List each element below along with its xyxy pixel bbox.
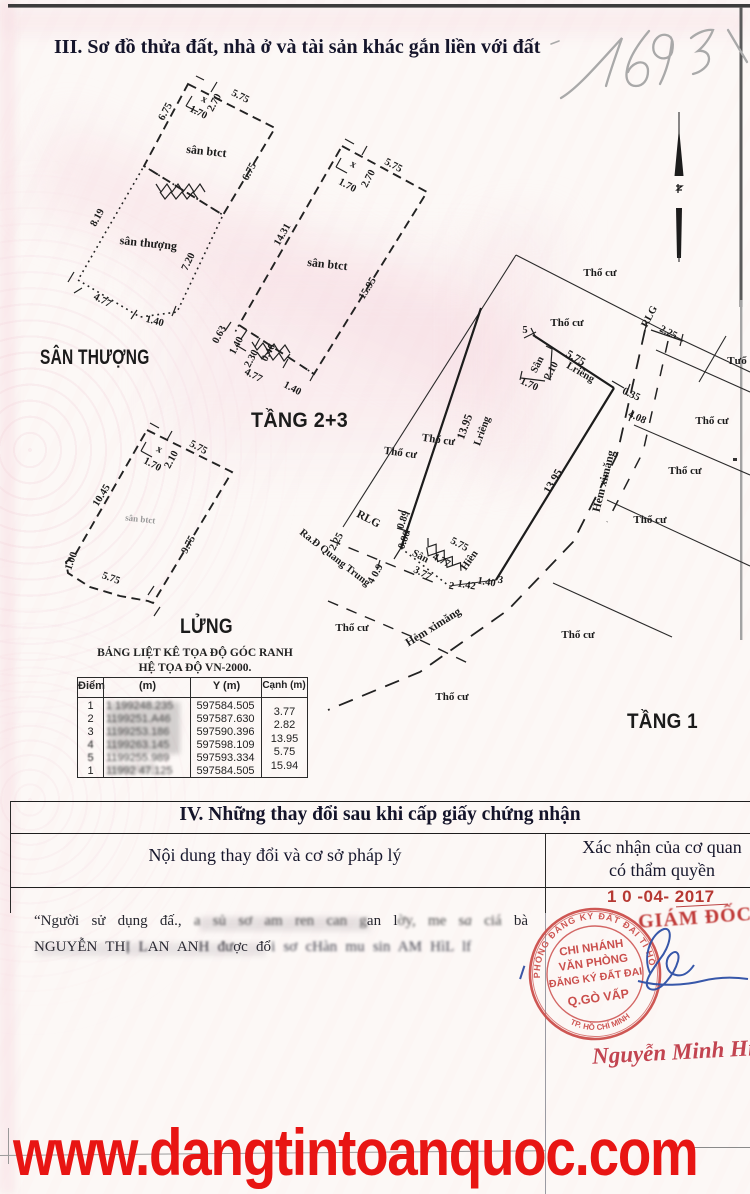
svg-text:1.00: 1.00 [63,551,80,572]
svg-text:Thổ cư: Thổ cư [668,465,702,477]
svg-text:5.75: 5.75 [229,88,250,106]
svg-text:8.19: 8.19 [89,207,107,228]
svg-text:9.75: 9.75 [180,534,198,555]
svg-text:5.75: 5.75 [187,439,208,457]
svg-text:Thổ cư: Thổ cư [633,514,667,526]
svg-text:Thổ cư: Thổ cư [435,691,469,703]
svg-text:15.95: 15.95 [357,276,379,302]
svg-text:1.40: 1.40 [476,576,496,590]
svg-text:Thổ cư: Thổ cư [583,267,617,279]
svg-text:1.70: 1.70 [141,456,162,474]
svg-text:2.10: 2.10 [543,360,561,381]
svg-text:x: x [154,444,164,457]
svg-text:14.31: 14.31 [272,222,293,248]
svg-text:Thổ cư: Thổ cư [550,317,584,329]
svg-text:x: x [348,159,358,172]
svg-text:1.40: 1.40 [144,314,165,329]
svg-text:0.63: 0.63 [211,324,229,345]
svg-text:0.80: 0.80 [396,530,413,551]
svg-text:sân thượng: sân thượng [119,233,178,253]
svg-text:RLG: RLG [355,508,383,530]
svg-text:13.95: 13.95 [542,467,565,496]
svg-text:sân btct: sân btct [186,142,228,160]
svg-text:sân btct: sân btct [307,255,349,273]
svg-text:SÂN THƯỢNG: SÂN THƯỢNG [40,345,150,369]
svg-text:4.77: 4.77 [91,292,112,310]
svg-text:1.40: 1.40 [281,380,302,398]
svg-text:sân btct: sân btct [125,512,156,525]
svg-text:5.75: 5.75 [448,536,469,554]
svg-text:RLG: RLG [640,304,660,329]
svg-text:1.40: 1.40 [228,335,246,356]
svg-text:Lriêng: Lriêng [472,414,493,447]
svg-text:5: 5 [522,325,527,336]
svg-text:Thổ cư: Thổ cư [383,445,418,462]
svg-text:5.75: 5.75 [382,157,403,175]
svg-text:Hẻm ximăng: Hẻm ximăng [591,449,618,513]
svg-text:3: 3 [497,575,504,587]
svg-text:0.35: 0.35 [620,386,641,404]
svg-text:0.9: 0.9 [370,562,386,579]
svg-text:Thổ cư: Thổ cư [561,629,595,641]
svg-text:1.70: 1.70 [518,376,539,394]
svg-text:4.77: 4.77 [242,367,263,385]
svg-text:1.70: 1.70 [336,177,357,195]
svg-text:2: 2 [448,581,455,593]
svg-text:Thổ cư: Thổ cư [695,415,729,427]
svg-text:6.75: 6.75 [241,161,259,182]
svg-text:TẦNG 2+3: TẦNG 2+3 [251,408,348,432]
svg-text:LỬNG: LỬNG [180,612,233,638]
svg-text:Hẻm ximăng: Hẻm ximăng [404,606,464,650]
svg-text:2.70: 2.70 [360,168,378,189]
svg-text:2.10: 2.10 [163,449,181,470]
svg-text:13.95: 13.95 [455,413,475,442]
svg-text:Thổ cư: Thổ cư [421,432,456,449]
svg-text:0.89: 0.89 [395,510,412,531]
svg-text:1.42: 1.42 [456,579,476,593]
svg-text:2.30: 2.30 [243,348,261,369]
svg-text:Tưổ: Tưổ [727,355,747,367]
svg-text:TẦNG 1: TẦNG 1 [627,709,698,733]
svg-text:Thổ cư: Thổ cư [335,622,369,634]
svg-text:10.45: 10.45 [91,483,113,509]
svg-text:7.20: 7.20 [180,251,198,272]
svg-text:5.75: 5.75 [100,570,121,587]
